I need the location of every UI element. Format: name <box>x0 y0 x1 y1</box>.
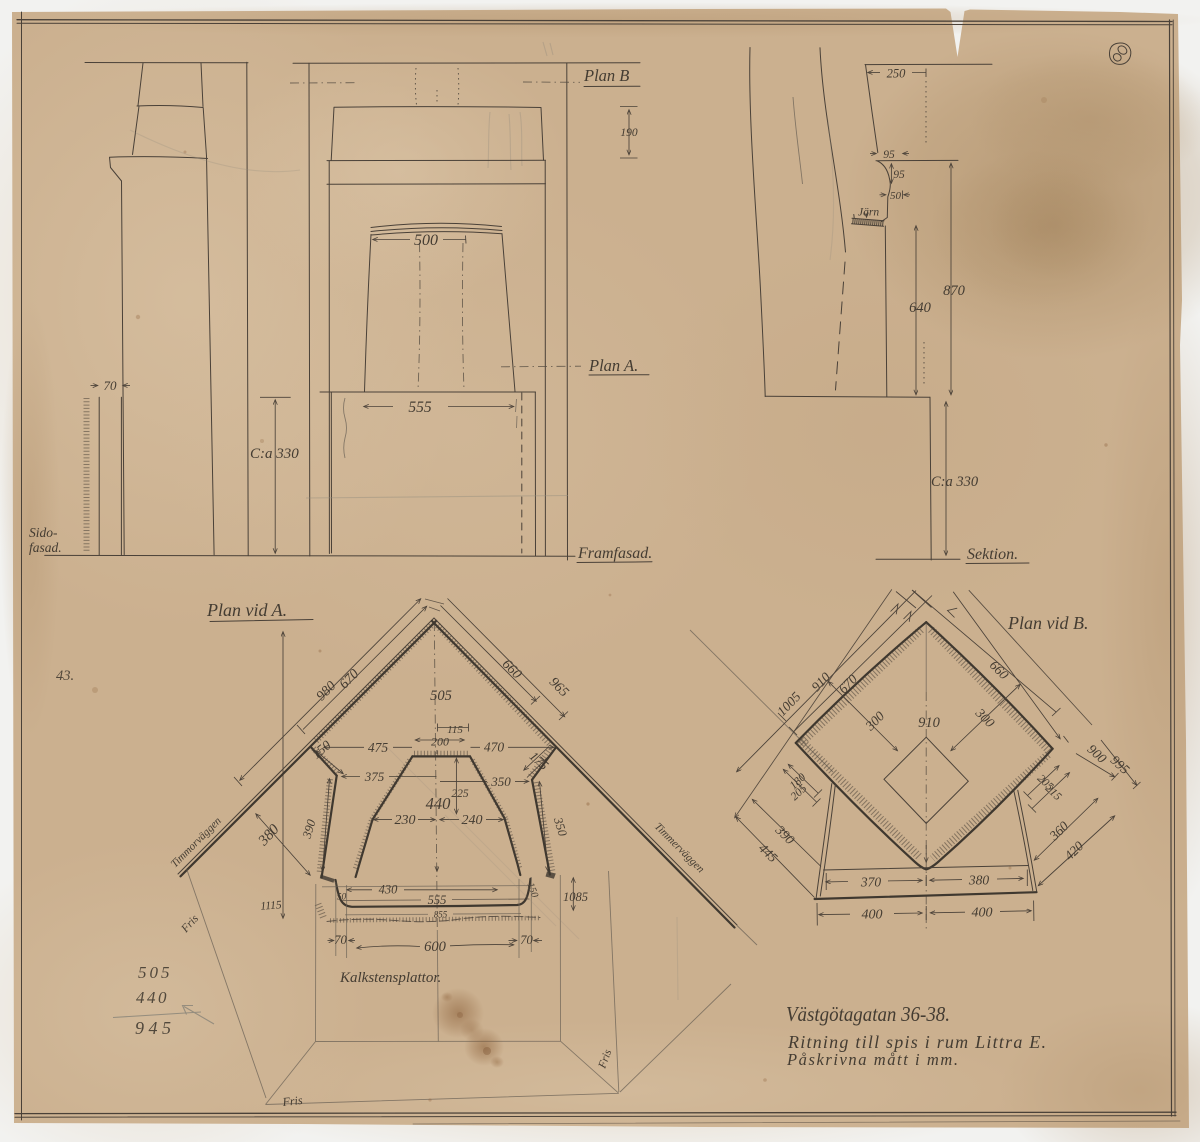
svg-text:190: 190 <box>620 127 638 139</box>
svg-text:50: 50 <box>337 893 347 903</box>
svg-text:95: 95 <box>883 149 895 161</box>
svg-text:Ritning till spis i rum Littra: Ritning till spis i rum Littra E. <box>787 1032 1046 1052</box>
svg-text:Järn: Järn <box>858 207 879 219</box>
svg-text:Kalkstensplattor.: Kalkstensplattor. <box>339 970 441 986</box>
svg-text:400: 400 <box>862 908 883 923</box>
svg-text:Framfasad.: Framfasad. <box>577 545 652 562</box>
svg-text:430: 430 <box>379 883 399 897</box>
svg-text:Sido-: Sido- <box>29 525 58 540</box>
svg-text:Sektion.: Sektion. <box>967 546 1018 563</box>
svg-text:505: 505 <box>138 963 173 982</box>
svg-text:230: 230 <box>395 813 416 828</box>
svg-text:200: 200 <box>431 735 449 749</box>
svg-text:225: 225 <box>451 788 469 800</box>
svg-text:C:a 330: C:a 330 <box>250 446 299 462</box>
svg-text:440: 440 <box>136 988 169 1007</box>
svg-text:475: 475 <box>368 740 389 755</box>
svg-text:555: 555 <box>428 893 447 907</box>
svg-text:400: 400 <box>972 906 993 921</box>
svg-text:Västgötagatan 36-38.: Västgötagatan 36-38. <box>786 1002 950 1026</box>
svg-text:95: 95 <box>893 169 905 181</box>
svg-text:370: 370 <box>860 875 882 890</box>
svg-text:470: 470 <box>484 740 505 755</box>
svg-text:640: 640 <box>909 300 932 316</box>
svg-text:555: 555 <box>408 399 432 416</box>
svg-text:50: 50 <box>890 190 902 202</box>
svg-text:fasad.: fasad. <box>29 540 62 555</box>
svg-text:115: 115 <box>447 724 463 736</box>
svg-text:240: 240 <box>462 813 483 828</box>
svg-text:945: 945 <box>135 1018 176 1038</box>
svg-text:70: 70 <box>104 378 118 393</box>
svg-text:380: 380 <box>968 873 990 888</box>
svg-text:Plan A.: Plan A. <box>588 356 638 375</box>
svg-text:Påskrivna mått i mm.: Påskrivna mått i mm. <box>786 1050 958 1069</box>
svg-text:Plan vid A.: Plan vid A. <box>206 600 287 620</box>
svg-text:350: 350 <box>490 774 511 789</box>
svg-text:600: 600 <box>424 939 447 955</box>
svg-text:Plan B: Plan B <box>583 66 629 85</box>
svg-text:375: 375 <box>364 769 385 784</box>
svg-text:910: 910 <box>918 715 941 731</box>
svg-text:1115: 1115 <box>260 899 282 912</box>
svg-text:70: 70 <box>334 933 347 947</box>
svg-text:70: 70 <box>520 933 533 947</box>
svg-text:250: 250 <box>887 67 907 81</box>
svg-text:505: 505 <box>430 688 452 704</box>
svg-text:440: 440 <box>426 794 452 813</box>
svg-text:870: 870 <box>943 283 966 299</box>
svg-text:1085: 1085 <box>563 890 588 904</box>
svg-text:500: 500 <box>414 232 438 249</box>
svg-text:Fris: Fris <box>281 1093 304 1109</box>
svg-text:43.: 43. <box>56 668 74 684</box>
svg-text:C:a 330: C:a 330 <box>931 474 979 490</box>
svg-text:Plan vid B.: Plan vid B. <box>1007 613 1088 633</box>
